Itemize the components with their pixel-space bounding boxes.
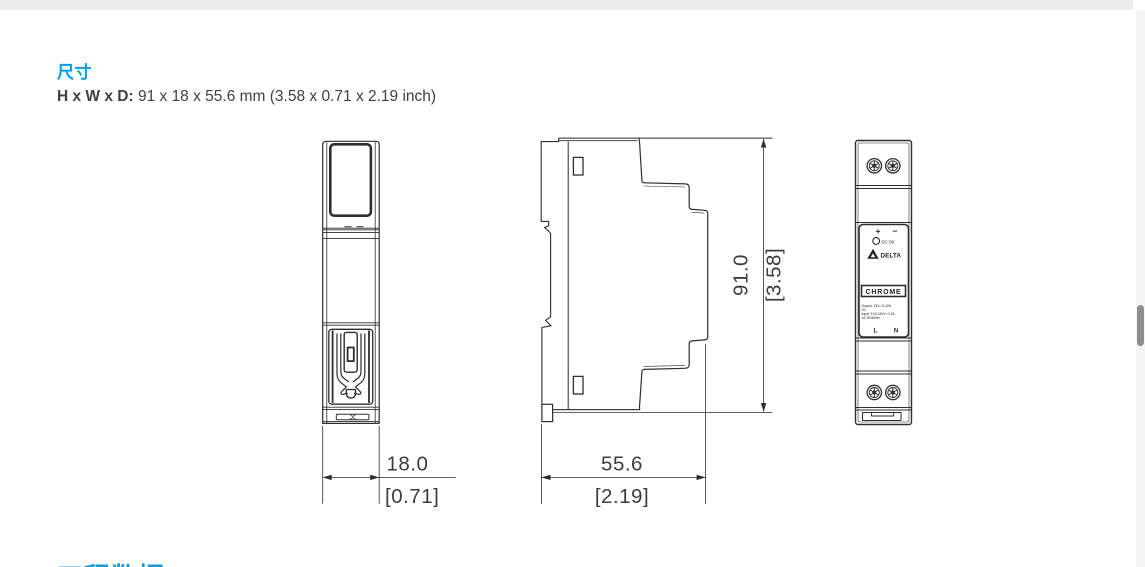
side-din-rail-edge — [541, 150, 551, 405]
panel-led-label: DC OK — [882, 239, 895, 244]
dimensions-summary-value: 91 x 18 x 55.6 mm (3.58 x 0.71 x 2.19 in… — [134, 88, 436, 105]
side-foot — [542, 404, 553, 421]
side-height-inch-label: [3.58] — [763, 248, 786, 302]
panel-neutral-label: N — [894, 329, 898, 335]
front-width-inch-label: [0.71] — [385, 485, 439, 508]
side-view-drawing: 55.6 [2.19] 91.0 [3.58] — [525, 130, 805, 515]
front-din-clip-panel — [329, 329, 373, 404]
panel-bottom-clip — [863, 413, 902, 421]
panel-view-drawing: + − DC OK DELTA CHROME Output: 24V⎓0.42A… — [848, 135, 920, 430]
scrollbar-thumb[interactable] — [1137, 305, 1144, 346]
panel-minus-label: − — [893, 226, 898, 236]
front-bottom-slot — [336, 414, 369, 420]
panel-spec-text: Output: 24V⎓0.42A DC Input: 100-240V~0.3… — [862, 304, 896, 320]
front-width-mm-label: 18.0 — [387, 452, 429, 475]
panel-dc-ok-led — [873, 238, 880, 245]
side-profile-outline — [639, 138, 708, 410]
side-height-mm-label: 91.0 — [730, 254, 753, 296]
dimensions-summary-label: H x W x D: — [57, 88, 134, 105]
panel-series-label: CHROME — [866, 289, 902, 296]
svg-text:AC 50/60Hz: AC 50/60Hz — [862, 316, 881, 320]
page: 尺寸 H x W x D: 91 x 18 x 55.6 mm (3.58 x … — [0, 0, 1145, 567]
dimensions-summary: H x W x D: 91 x 18 x 55.6 mm (3.58 x 0.7… — [57, 88, 436, 106]
panel-plus-label: + — [876, 226, 881, 236]
scrollbar-track[interactable] — [1136, 10, 1145, 567]
top-divider-bar — [0, 0, 1133, 10]
front-terminal-window — [330, 144, 371, 215]
section-heading-dimensions: 尺寸 — [57, 58, 92, 83]
section-heading-engineering-data: 工程数据 — [57, 557, 165, 567]
panel-housing-outline — [856, 141, 912, 425]
panel-brand-label: DELTA — [881, 253, 902, 260]
side-depth-mm-label: 55.6 — [601, 452, 643, 475]
panel-line-label: L — [874, 329, 878, 335]
side-depth-inch-label: [2.19] — [595, 485, 649, 508]
delta-logo-icon — [867, 249, 878, 259]
front-view-drawing: 18.0 [0.71] — [300, 135, 465, 510]
